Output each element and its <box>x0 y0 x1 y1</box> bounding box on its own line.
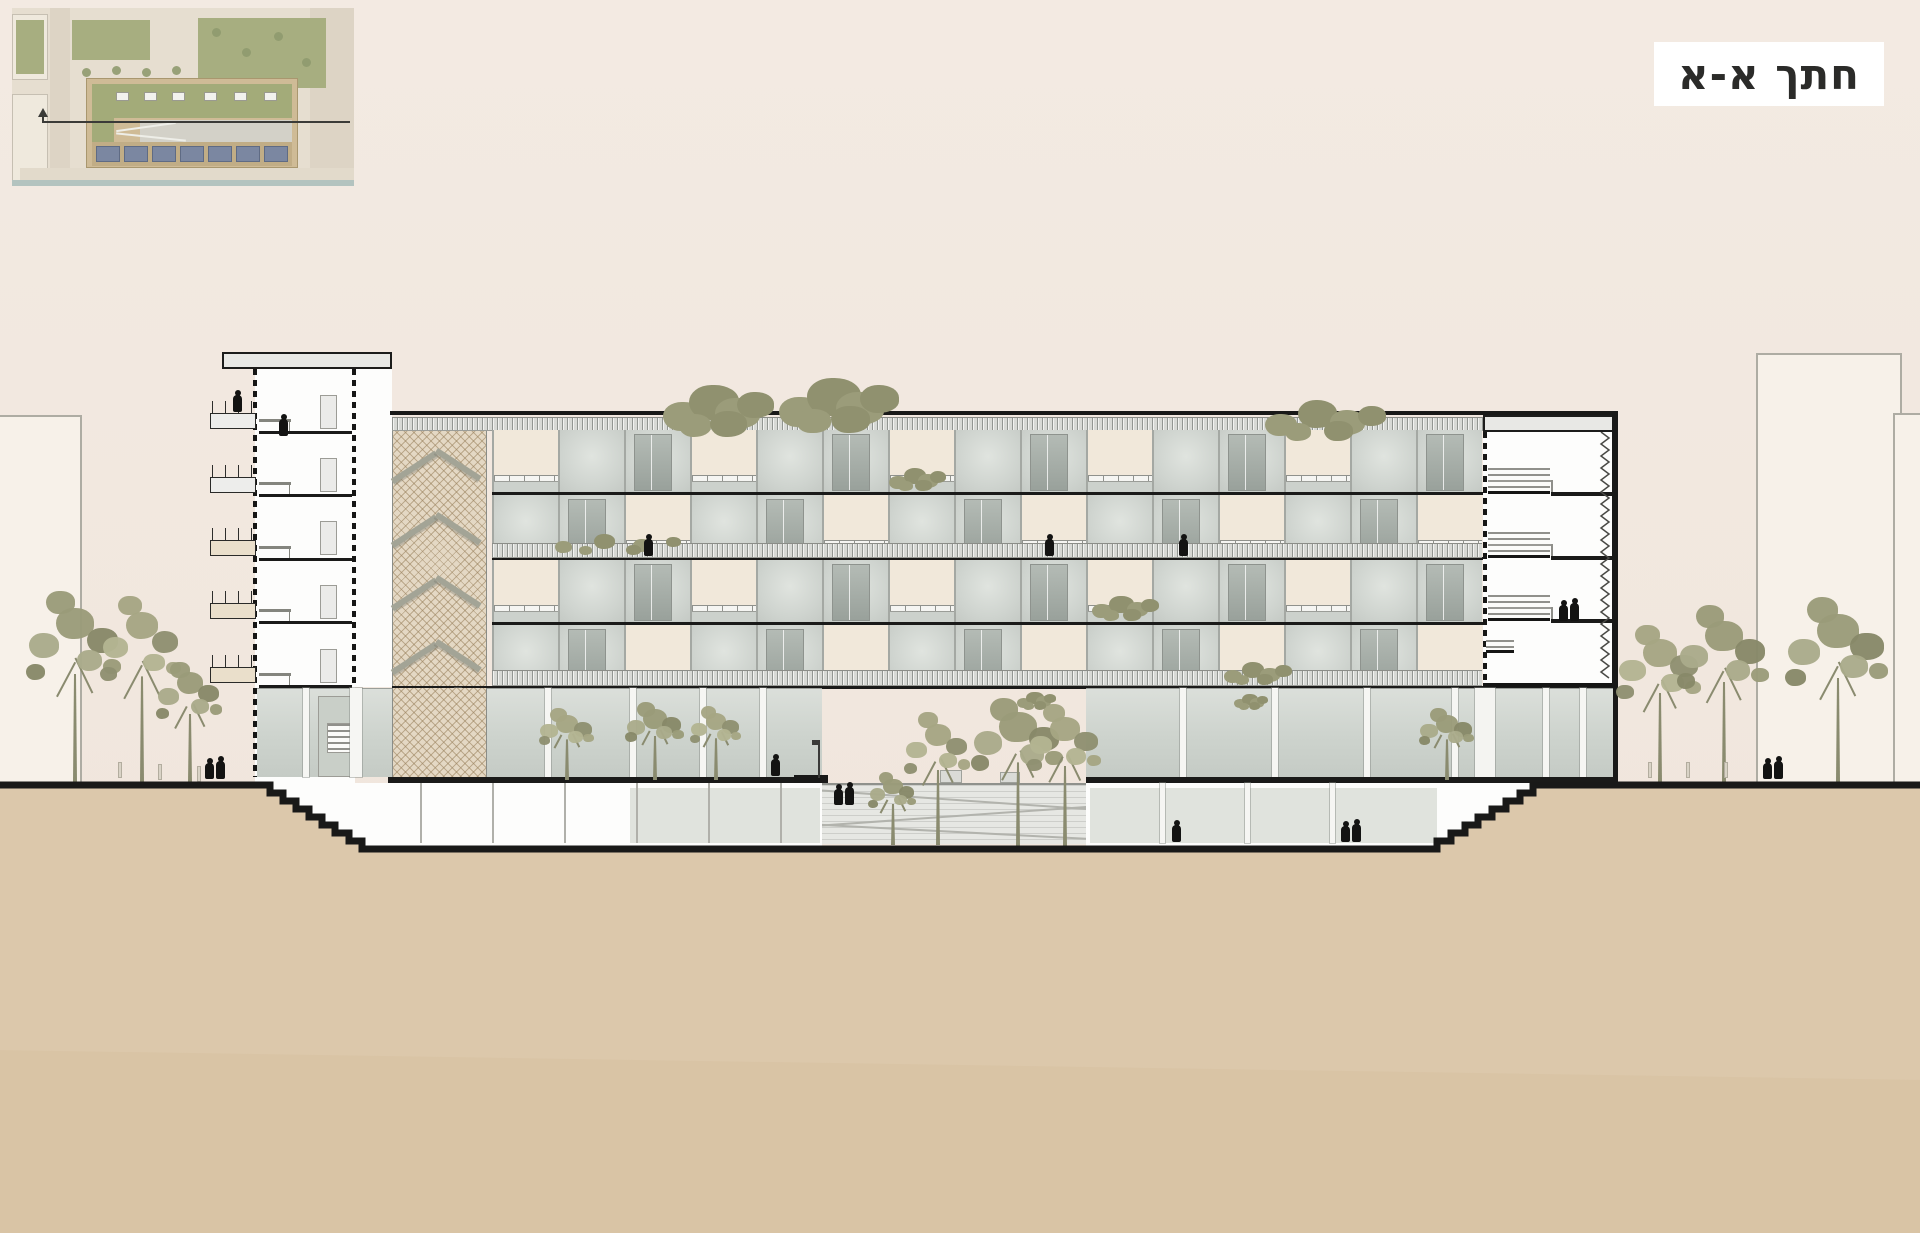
plan-solar-panel <box>236 146 260 162</box>
person-silhouette <box>1774 756 1783 779</box>
person-body <box>216 761 225 779</box>
person-silhouette <box>1341 821 1350 842</box>
person-body <box>1774 761 1783 779</box>
plan-solar-panel <box>180 146 204 162</box>
person-body <box>771 759 780 776</box>
plan-skylight <box>204 92 217 101</box>
plan-tree <box>82 68 91 77</box>
plan-tree <box>212 28 221 37</box>
person-silhouette <box>233 390 242 412</box>
person-body <box>834 789 843 805</box>
plan-solar-panel <box>96 146 120 162</box>
person-silhouette <box>771 754 780 776</box>
person-body <box>205 763 214 779</box>
plan-skylight <box>172 92 185 101</box>
plan-tree <box>142 68 151 77</box>
person-silhouette <box>216 756 225 779</box>
person-body <box>1763 763 1772 779</box>
plan-section-line <box>42 121 350 123</box>
person-body <box>1341 826 1350 842</box>
person-body <box>279 419 288 436</box>
person-body <box>845 787 854 805</box>
person-body <box>233 395 242 412</box>
section-drawing: חתך א-א <box>0 0 1920 1233</box>
person-silhouette <box>845 782 854 805</box>
plan-canal <box>12 180 354 186</box>
page-title: חתך א-א <box>1654 42 1884 106</box>
plan-tree <box>112 66 121 75</box>
person-silhouette <box>1352 819 1361 842</box>
person-body <box>1179 539 1188 556</box>
person-silhouette <box>1763 758 1772 779</box>
plan-tree <box>172 66 181 75</box>
person-body <box>644 539 653 556</box>
person-silhouette <box>1570 598 1579 621</box>
site-plan-thumbnail <box>12 8 354 186</box>
plan-tree <box>274 32 283 41</box>
person-body <box>1570 603 1579 621</box>
plan-green-area <box>72 20 150 60</box>
plan-skylight <box>234 92 247 101</box>
plan-courtyard-green <box>16 20 44 74</box>
plan-tree <box>302 58 311 67</box>
plan-solar-panel <box>152 146 176 162</box>
plan-skylight <box>264 92 277 101</box>
person-body <box>1045 539 1054 556</box>
person-body <box>1352 824 1361 842</box>
title-box: חתך א-א <box>1654 42 1884 106</box>
plan-section-arrow-stem <box>42 114 44 123</box>
person-silhouette <box>1045 534 1054 556</box>
person-silhouette <box>834 784 843 805</box>
person-body <box>1559 605 1568 621</box>
person-body <box>1172 825 1181 842</box>
person-silhouette <box>279 414 288 436</box>
plan-road-left <box>50 8 70 186</box>
plan-tree <box>242 48 251 57</box>
person-silhouette <box>644 534 653 556</box>
person-silhouette <box>205 758 214 779</box>
person-silhouette <box>1172 820 1181 842</box>
plan-skylight <box>116 92 129 101</box>
person-silhouette <box>1179 534 1188 556</box>
plan-sidewalk <box>20 168 354 180</box>
plan-solar-panel <box>264 146 288 162</box>
person-silhouette <box>1559 600 1568 621</box>
plan-green-roof <box>92 84 292 118</box>
plan-solar-panel <box>124 146 148 162</box>
plan-skylight <box>144 92 157 101</box>
plan-solar-panel <box>208 146 232 162</box>
